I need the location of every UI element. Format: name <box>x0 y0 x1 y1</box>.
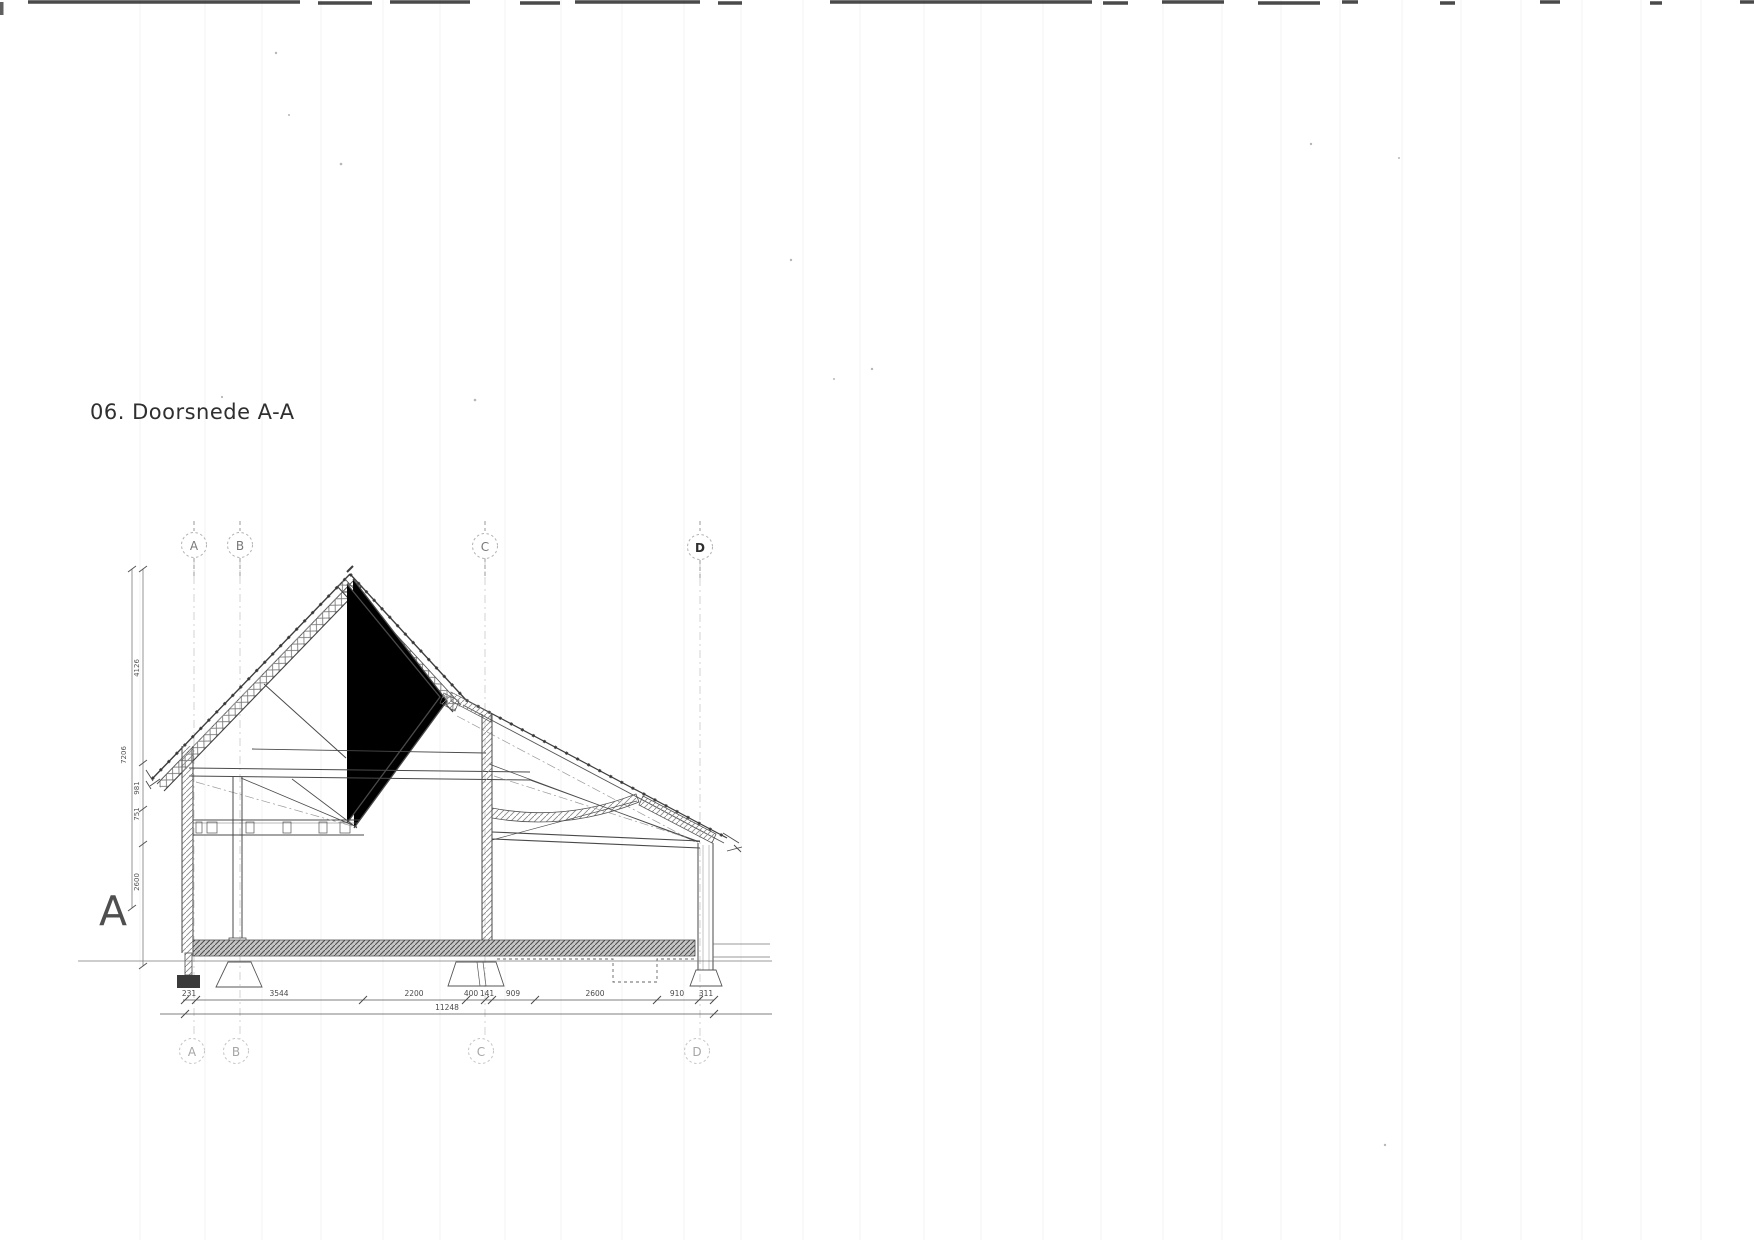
foundation-block-a <box>177 975 200 988</box>
section-drawing: A B C D A B C D 4126 7206 981 751 2600 <box>0 0 1754 1240</box>
horizontal-dimension-label: 400 <box>464 989 479 998</box>
footing-d <box>690 970 722 986</box>
vertical-dimension-label: 981 <box>133 781 141 794</box>
horizontal-dimension-label: 231 <box>182 989 197 998</box>
grid-label-a-top: A <box>190 539 199 553</box>
horizontal-dimension-label: 3544 <box>269 989 288 998</box>
total-dimension-label: 11248 <box>435 1003 459 1012</box>
wall-grid-a <box>182 746 193 953</box>
grid-label-d-top: D <box>695 541 705 555</box>
vertical-dimension-label: 2600 <box>133 873 141 891</box>
wall-grid-c <box>482 714 492 945</box>
grid-label-b-bottom: B <box>232 1045 240 1059</box>
footing-c <box>448 962 504 986</box>
horizontal-dimension-label: 311 <box>699 989 714 998</box>
grid-lines <box>194 521 700 1040</box>
horizontal-dimension-label: 2200 <box>404 989 423 998</box>
horizontal-dimension-label: 909 <box>506 989 521 998</box>
horizontal-dimension-chain: 231 3544 2200 400 141 909 2600 910 311 1… <box>160 989 772 1018</box>
footing-b <box>216 962 262 987</box>
grid-bubbles-top: A B C D <box>182 533 713 560</box>
scan-edge-artifact <box>0 2 1754 15</box>
right-bay-framing <box>489 764 700 848</box>
vertical-dimension-chain: 4126 7206 981 751 2600 <box>120 566 147 969</box>
vertical-dimension-label: 4126 <box>133 659 141 677</box>
vertical-dimension-label: 751 <box>133 807 141 820</box>
dropped-slab-dashed <box>497 959 694 982</box>
grid-bubbles-bottom: A B C D <box>180 1039 710 1064</box>
grid-label-b-top: B <box>236 539 244 553</box>
horizontal-dimension-label: 2600 <box>585 989 604 998</box>
post-grid-b <box>233 777 242 938</box>
scan-specks <box>221 52 1400 1146</box>
scanned-drawing-page: 06. Doorsnede A-A A <box>0 0 1754 1240</box>
horizontal-dimension-label: 141 <box>480 989 495 998</box>
grid-label-a-bottom: A <box>188 1045 197 1059</box>
vertical-dimension-label: 7206 <box>120 746 128 764</box>
grid-label-c-bottom: C <box>477 1045 485 1059</box>
mezzanine-floor <box>193 778 364 835</box>
floor-slab <box>193 940 695 956</box>
grid-label-c-top: C <box>481 540 489 554</box>
horizontal-dimension-label: 910 <box>670 989 685 998</box>
grid-label-d-bottom: D <box>692 1045 701 1059</box>
lower-roof <box>457 700 742 852</box>
